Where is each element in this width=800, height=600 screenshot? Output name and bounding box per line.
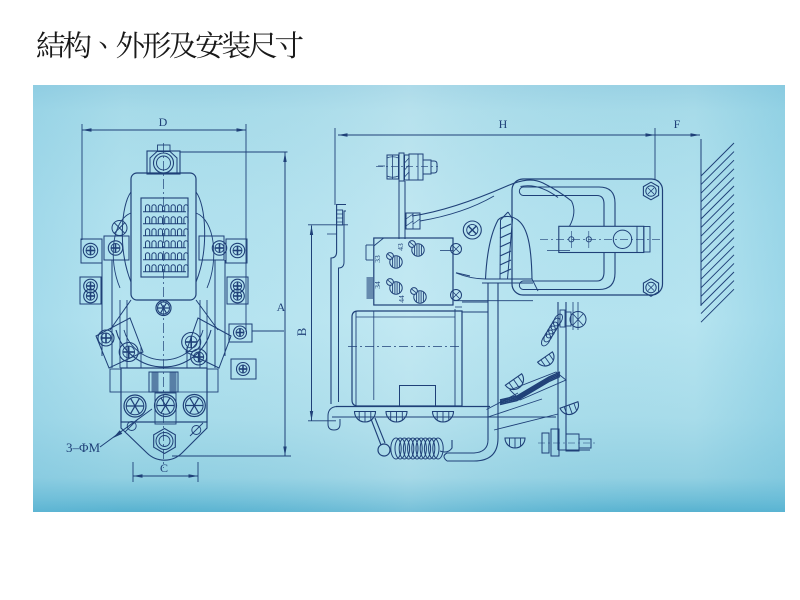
svg-text:D: D [159, 115, 168, 129]
svg-text:44: 44 [397, 295, 406, 303]
svg-text:C: C [160, 461, 168, 475]
svg-text:43: 43 [396, 243, 405, 251]
svg-text:H: H [499, 117, 508, 131]
svg-text:B: B [294, 327, 309, 336]
svg-text:33: 33 [373, 255, 382, 263]
svg-text:A: A [277, 300, 286, 314]
svg-text:F: F [674, 117, 681, 131]
svg-text:34: 34 [373, 281, 382, 289]
svg-text:3–ΦM: 3–ΦM [66, 440, 101, 455]
